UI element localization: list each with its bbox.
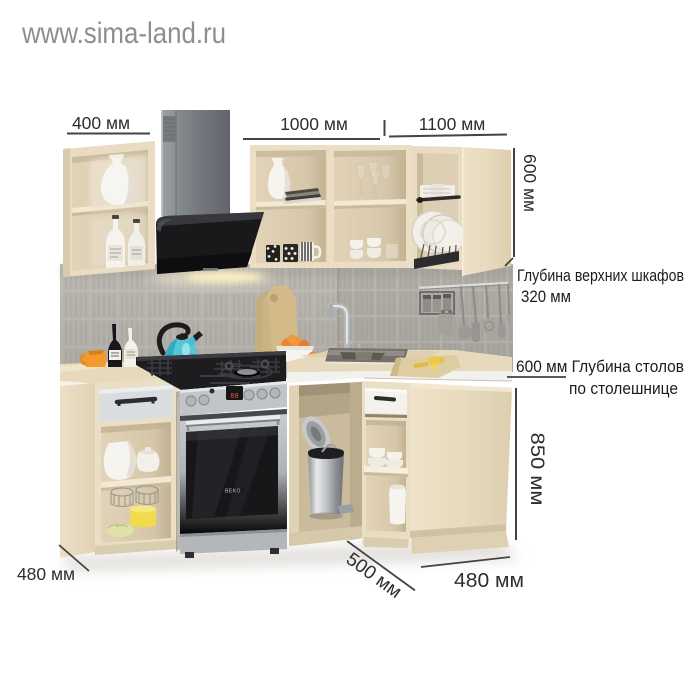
svg-text:по столешнице: по столешнице [569, 380, 678, 398]
svg-text:88: 88 [230, 393, 238, 401]
svg-text:400 мм: 400 мм [72, 113, 130, 133]
svg-text:1100 мм: 1100 мм [419, 114, 486, 134]
svg-text:www.sima-land.ru: www.sima-land.ru [21, 17, 226, 50]
svg-text:BEKO: BEKO [225, 489, 241, 495]
svg-text:600 мм: 600 мм [520, 154, 540, 212]
svg-text:320 мм: 320 мм [521, 288, 571, 306]
svg-text:850 мм: 850 мм [526, 433, 547, 506]
svg-text:480 мм: 480 мм [454, 570, 524, 592]
svg-text:600 мм Глубина столов: 600 мм Глубина столов [516, 358, 684, 376]
svg-text:480 мм: 480 мм [17, 564, 75, 584]
svg-text:1000 мм: 1000 мм [280, 114, 348, 134]
svg-text:Глубина верхних шкафов: Глубина верхних шкафов [517, 267, 684, 285]
